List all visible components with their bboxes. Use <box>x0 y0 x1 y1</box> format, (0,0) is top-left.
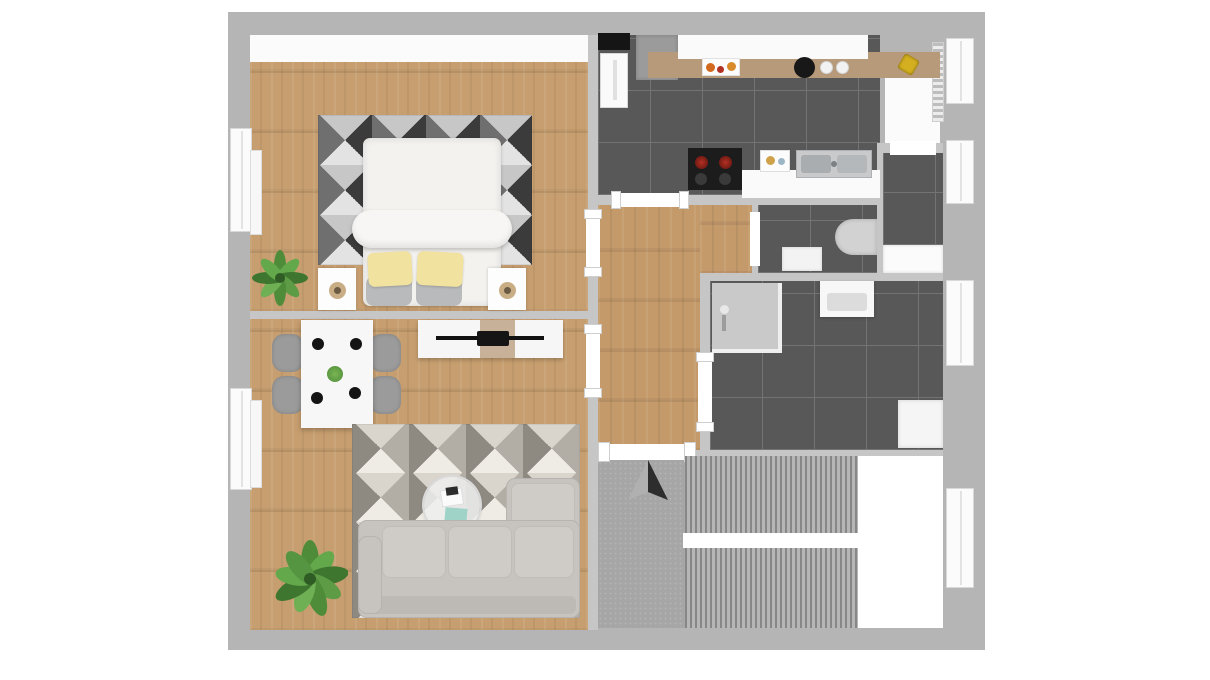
sofa-front-edge <box>362 596 576 614</box>
wc-cabinet <box>782 247 822 271</box>
door-wc <box>750 212 760 266</box>
bedroom-wardrobe <box>250 35 588 62</box>
door-bathroom <box>698 358 712 424</box>
kettle <box>794 57 815 78</box>
sofa-seat-cushion-3 <box>514 526 574 578</box>
kitchen-fridge <box>600 53 628 108</box>
door-kitchen-jamb-right <box>679 191 689 209</box>
bed-rolled-blanket <box>352 210 512 248</box>
window-bathroom-right <box>946 280 974 366</box>
hallway-floor <box>598 205 700 450</box>
door-living-jamb-top <box>584 324 602 334</box>
pantry-cabinet <box>883 245 943 273</box>
lamp-right <box>499 282 516 299</box>
living-room-plant <box>272 538 348 620</box>
table-centerpiece-plant <box>327 366 343 382</box>
wall-bath-top <box>700 273 943 281</box>
stove <box>688 148 742 190</box>
dining-chair-top-left <box>272 334 304 372</box>
dining-chair-bottom-right <box>369 376 401 414</box>
door-bedroom-jamb-bottom <box>584 267 602 277</box>
place-setting-3 <box>311 392 323 404</box>
radiator-bedroom <box>250 150 262 235</box>
bedroom-plant <box>252 248 308 308</box>
toilet <box>835 219 877 255</box>
fruit-tray <box>702 58 740 76</box>
window-living-left <box>230 388 252 490</box>
sofa-armrest-left <box>358 536 382 614</box>
window-bedroom-left <box>230 128 252 232</box>
place-setting-2 <box>350 338 362 350</box>
kitchen-upper-cabinet <box>678 35 868 59</box>
kitchen-door-mat <box>598 33 630 50</box>
washing-machine <box>898 400 943 448</box>
stairs-divider <box>683 533 860 548</box>
place-setting-1 <box>312 338 324 350</box>
kitchen-base-cabinet <box>760 150 790 172</box>
bed-pillow-yellow-left <box>367 251 413 287</box>
door-living-jamb-bottom <box>584 388 602 398</box>
window-pantry-right <box>946 140 974 204</box>
place-setting-4 <box>349 387 361 399</box>
bathroom-vanity-sink <box>820 281 874 317</box>
pantry-floor <box>883 153 943 245</box>
tv-sideboard <box>418 320 563 358</box>
shower <box>712 283 782 353</box>
door-bedroom-jamb-top <box>584 209 602 219</box>
kitchen-sink <box>796 150 872 178</box>
window-stairwell-right <box>946 488 974 588</box>
window-kitchen-right <box>946 38 974 104</box>
door-living-room <box>586 330 600 392</box>
dining-chair-bottom-left <box>272 376 304 414</box>
wall-bedroom-living <box>250 311 588 319</box>
north-arrow-icon <box>622 458 674 502</box>
lamp-left <box>329 282 346 299</box>
stair-void <box>858 456 943 628</box>
hallway-extension-floor <box>700 205 752 273</box>
dining-chair-top-right <box>369 334 401 372</box>
sofa-seat-cushion-1 <box>382 526 446 578</box>
sofa-seat-cushion-2 <box>448 526 512 578</box>
plate-2 <box>836 61 849 74</box>
book-dark-small <box>446 486 459 496</box>
bed-pillow-yellow-right <box>416 251 464 287</box>
door-kitchen-jamb-left <box>611 191 621 209</box>
stairs-upper-flight <box>685 456 858 533</box>
stairs-lower-flight <box>685 548 858 628</box>
door-entrance-jamb-left <box>598 442 610 462</box>
floor-plan-canvas <box>0 0 1210 680</box>
wall-pantry-left <box>877 143 883 275</box>
dining-table <box>301 320 373 428</box>
tv-center-unit <box>477 331 509 346</box>
door-kitchen <box>618 193 682 207</box>
radiator-living <box>250 400 262 488</box>
plate-1 <box>820 61 833 74</box>
door-bathroom-jamb-top <box>696 352 714 362</box>
door-bathroom-jamb-bottom <box>696 422 714 432</box>
door-pantry <box>890 141 936 155</box>
door-bedroom <box>586 215 600 271</box>
